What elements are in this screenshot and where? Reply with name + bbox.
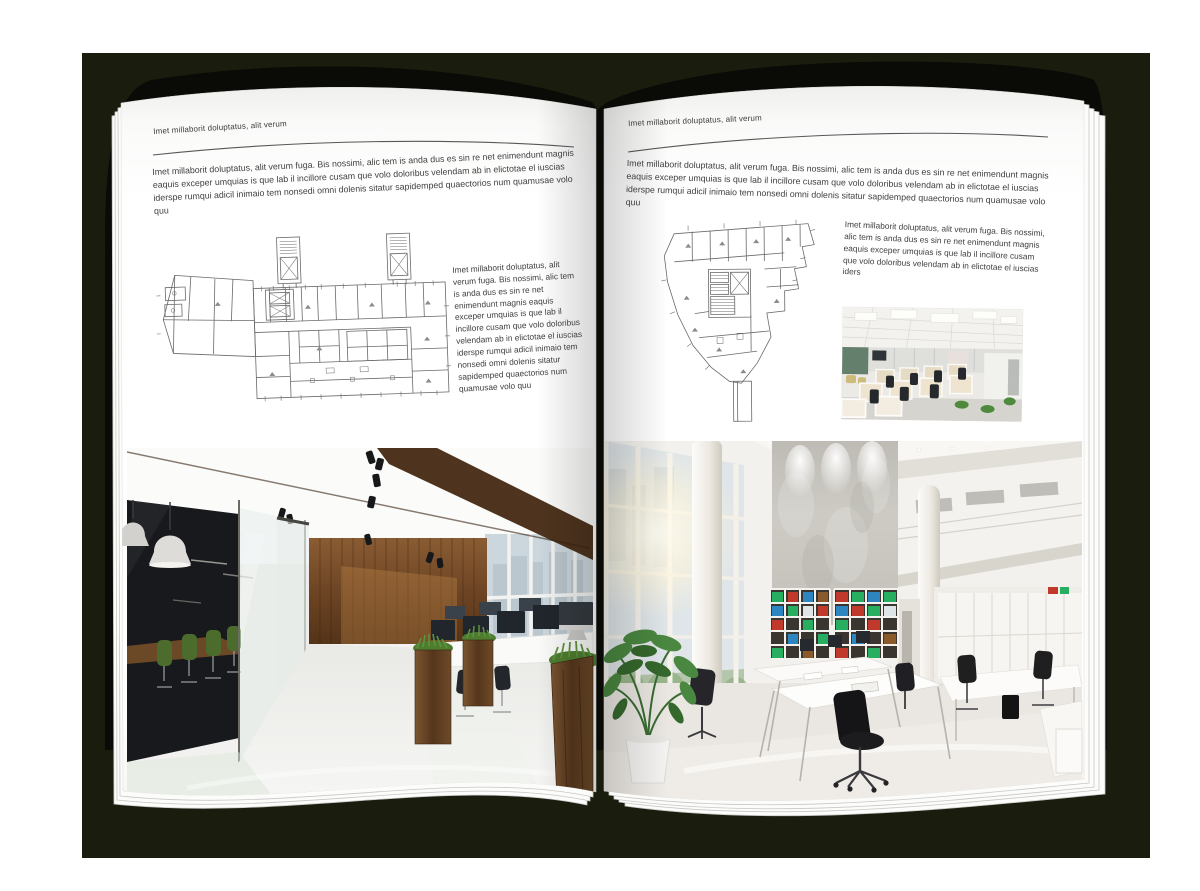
left-page-caption: Imet millaborit doluptatus, alit verum f… [452, 258, 586, 395]
photo-office-loft [117, 448, 601, 802]
photo-office-small [841, 307, 1023, 422]
book-spread: Imet millaborit doluptatus, alit verum I… [0, 0, 1200, 891]
right-page-caption: Imet millaborit doluptatus, alit verum f… [842, 219, 1047, 287]
bookshelf [770, 589, 898, 659]
